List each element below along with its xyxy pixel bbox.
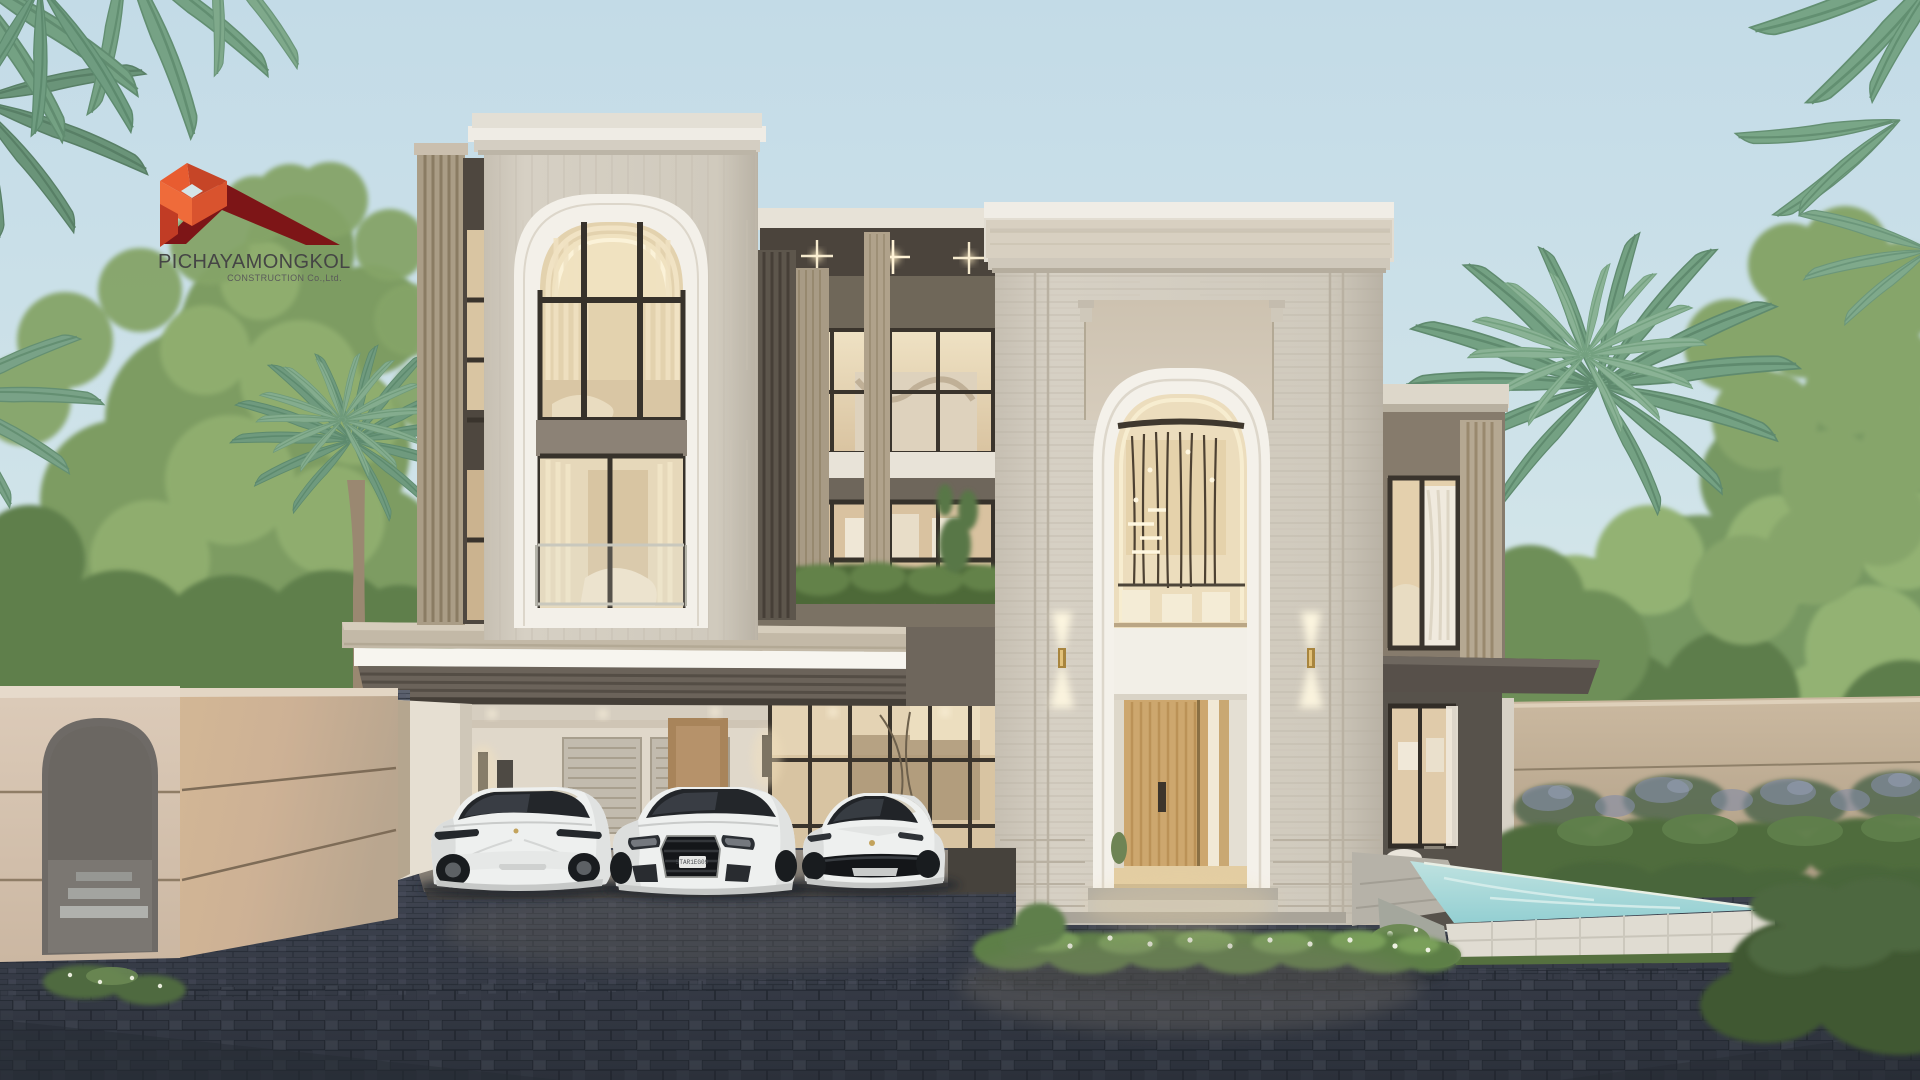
svg-text:5TAR1EG09: 5TAR1EG09 xyxy=(676,859,709,866)
svg-text:PICHAYAMONGKOL: PICHAYAMONGKOL xyxy=(158,251,351,273)
svg-text:CONSTRUCTION Co.,Ltd.: CONSTRUCTION Co.,Ltd. xyxy=(227,273,342,283)
